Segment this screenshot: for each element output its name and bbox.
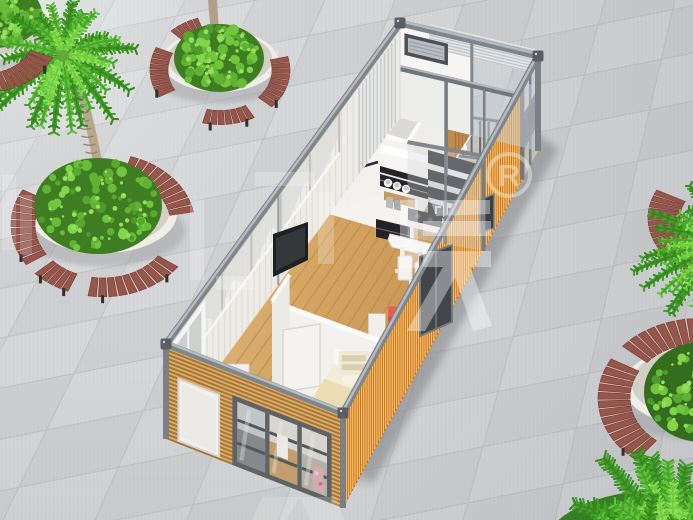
svg-text:R: R (498, 158, 520, 193)
